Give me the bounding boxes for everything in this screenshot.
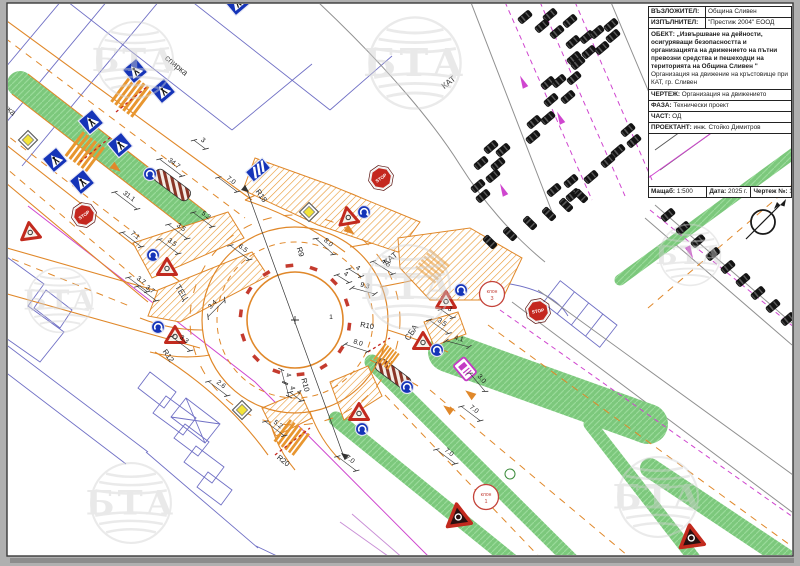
drawing-value: Организация на движението [682, 91, 767, 98]
part-label: ЧАСТ: [651, 113, 670, 120]
svg-text:БТА: БТА [23, 284, 96, 316]
client-label: ВЪЗЛОЖИТЕЛ: [649, 7, 706, 17]
scale-cell: Мащаб: 1:500 [649, 187, 706, 197]
svg-text:БТА: БТА [656, 241, 725, 271]
field-designer: ПРОЕКТАНТ: инж. Стойко Димитров [649, 123, 791, 134]
designer-value: инж. Стойко Димитров [694, 124, 761, 131]
title-block-gap [649, 134, 791, 186]
object-subtitle: Организация на движение на кръстовище пр… [651, 71, 789, 87]
sheet-shadow [10, 558, 794, 563]
svg-text:БТА: БТА [361, 267, 456, 308]
number-value: 1 [789, 188, 791, 195]
object-label: ОБЕКТ: [651, 31, 675, 38]
field-part: ЧАСТ: ОД [649, 112, 791, 123]
field-drawing: ЧЕРТЕЖ: Организация на движението [649, 90, 791, 101]
number-cell: Чертеж №: 1 [750, 187, 791, 197]
svg-text:1: 1 [329, 314, 333, 321]
branch-label: клон3 [480, 282, 505, 307]
phase-label: ФАЗА: [651, 102, 672, 109]
object-block: ОБЕКТ: „Извършване на дейности, осигуряв… [649, 29, 791, 90]
branch-label: клон1 [474, 485, 499, 510]
svg-text:клон: клон [487, 289, 498, 295]
client-value: Община Сливен [706, 7, 791, 17]
number-label: Чертеж №: [753, 188, 787, 195]
title-block: ВЪЗЛОЖИТЕЛ: Община Сливен ИЗПЪЛНИТЕЛ: "П… [648, 6, 792, 198]
svg-text:БТА: БТА [613, 477, 703, 517]
title-block-footer: Мащаб: 1:500 Дата: 2025 г. Чертеж №: 1 [649, 186, 791, 197]
svg-text:клон: клон [481, 492, 492, 498]
designer-label: ПРОЕКТАНТ: [651, 124, 692, 131]
contractor-label: ИЗПЪЛНИТЕЛ: [649, 18, 706, 28]
field-phase: ФАЗА: Технически проект [649, 101, 791, 112]
title-row-contractor: ИЗПЪЛНИТЕЛ: "Престиж 2004" ЕООД [649, 18, 791, 29]
phase-value: Технически проект [673, 102, 728, 109]
date-cell: Дата: 2025 г. [706, 187, 750, 197]
svg-text:БТА: БТА [92, 41, 178, 79]
svg-text:БТА: БТА [363, 41, 466, 86]
svg-text:1: 1 [484, 499, 487, 505]
svg-text:БТА: БТА [86, 483, 176, 523]
scale-label: Мащаб: [651, 188, 675, 195]
title-row-client: ВЪЗЛОЖИТЕЛ: Община Сливен [649, 7, 791, 18]
scale-value: 1:500 [677, 188, 693, 195]
date-label: Дата: [709, 188, 726, 195]
contractor-value: "Престиж 2004" ЕООД [706, 18, 791, 28]
dimension-label: 1 [329, 314, 333, 321]
date-value: 2025 г. [728, 188, 747, 195]
drawing-label: ЧЕРТЕЖ: [651, 91, 680, 98]
svg-text:3: 3 [490, 296, 493, 302]
part-value: ОД [672, 113, 681, 120]
plan-sheet: STOP [0, 0, 800, 566]
